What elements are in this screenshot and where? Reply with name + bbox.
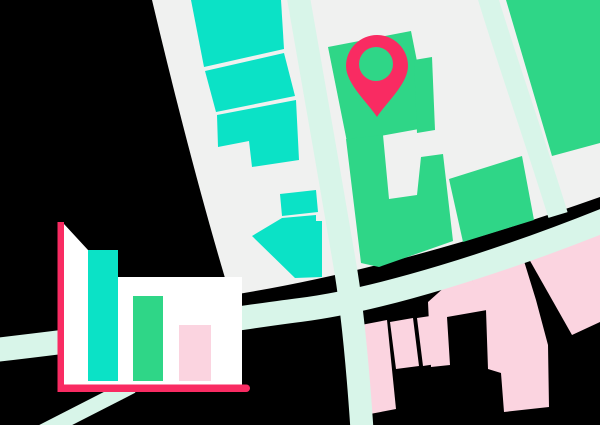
map-illustration <box>0 0 600 425</box>
building-green-small <box>414 57 435 133</box>
chart-bar-2 <box>133 296 163 381</box>
chart-x-axis <box>58 385 251 393</box>
chart-bar-1 <box>88 250 118 381</box>
chart-y-axis <box>58 222 65 392</box>
building-teal-arrow-stem <box>280 190 318 216</box>
chart-bar-3 <box>179 325 211 381</box>
map-canvas <box>0 0 600 425</box>
location-pin-hole <box>359 47 393 81</box>
